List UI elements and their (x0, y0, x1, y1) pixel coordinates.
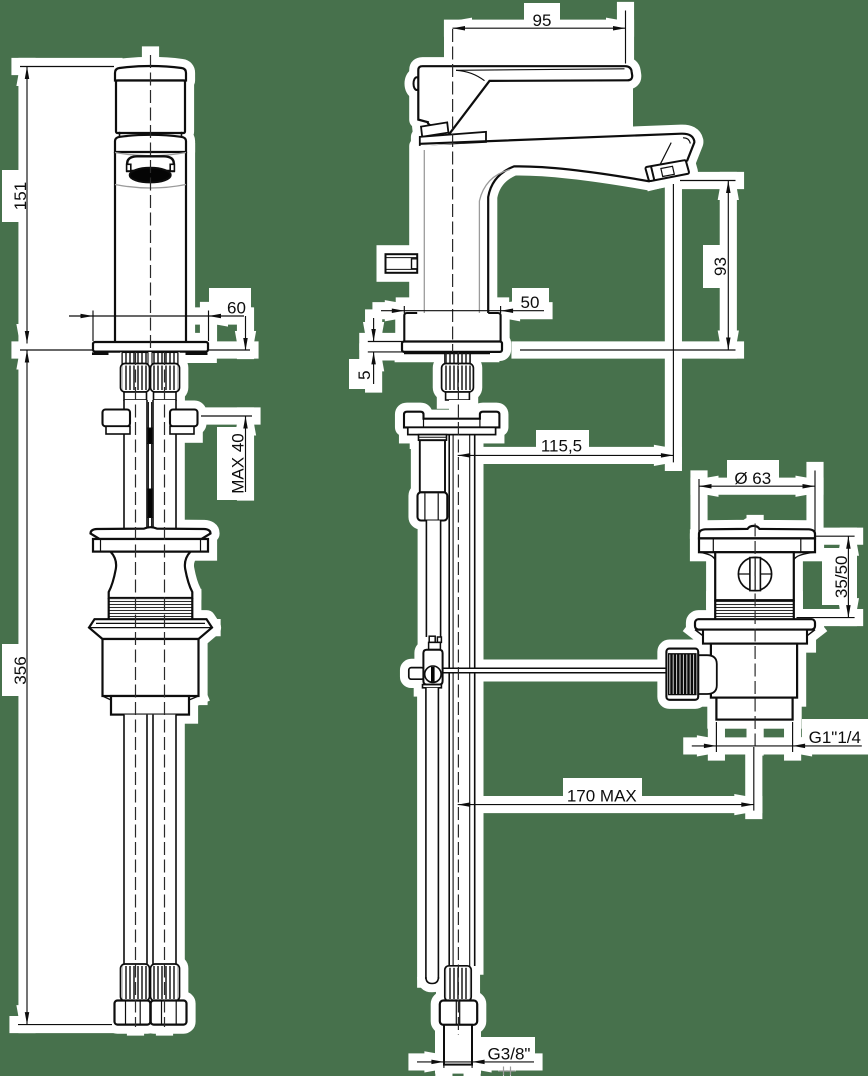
svg-text:151: 151 (11, 182, 30, 210)
svg-text:356: 356 (11, 656, 30, 684)
svg-text:Ø 63: Ø 63 (734, 469, 771, 488)
svg-text:MAX 40: MAX 40 (229, 433, 248, 493)
svg-text:G1"1/4: G1"1/4 (809, 728, 861, 747)
svg-text:5: 5 (355, 370, 374, 379)
svg-text:93: 93 (711, 257, 730, 276)
svg-text:35/50: 35/50 (832, 556, 851, 599)
svg-text:115,5: 115,5 (541, 436, 582, 455)
svg-text:170 MAX: 170 MAX (567, 786, 637, 805)
svg-text:G3/8": G3/8" (488, 1045, 531, 1064)
svg-text:95: 95 (533, 11, 552, 30)
svg-text:60: 60 (227, 299, 246, 318)
svg-text:50: 50 (521, 293, 540, 312)
